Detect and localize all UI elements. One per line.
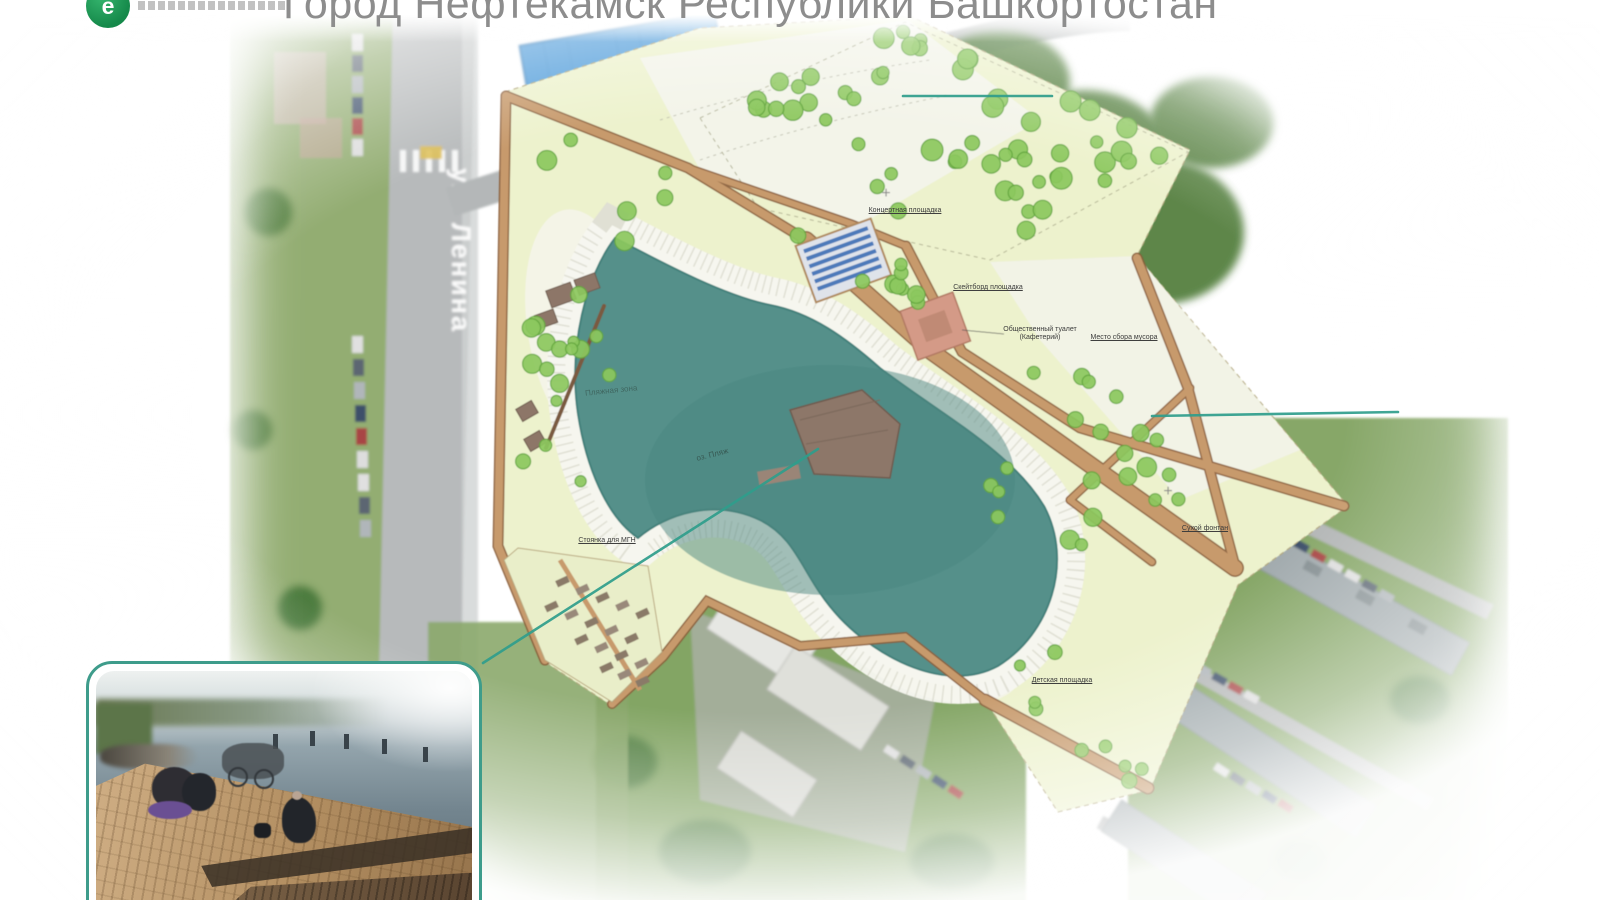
plan-label-disabled-parking: Стоянка для МГН	[578, 537, 635, 545]
purple-blanket	[148, 801, 192, 819]
piling	[310, 731, 315, 746]
plan-label-toilet-cafe: Общественный туалет (Кафетерий)	[997, 326, 1083, 342]
plan-label-concert-ground: Концертная площадка	[869, 207, 942, 215]
inset-photo-frame	[86, 661, 482, 900]
piling	[382, 739, 387, 754]
piling	[423, 747, 428, 762]
logo-caption	[138, 1, 286, 10]
inset-photo-pier	[96, 671, 472, 900]
page-title: Город Нефтекамск Республики Башкортостан	[283, 0, 1218, 26]
plan-label-skate-ground: Скейтборд площадка	[953, 284, 1023, 292]
logo-letter: е	[102, 0, 115, 20]
person-head	[292, 791, 302, 800]
bag	[254, 823, 271, 838]
survey-cross-2: +	[1163, 483, 1172, 500]
slide: ул. Ленина	[0, 0, 1600, 900]
sun-glare	[292, 671, 472, 784]
plan-label-dry-fountain: Сухой фонтан	[1182, 525, 1228, 533]
survey-cross: +	[881, 185, 890, 202]
bike-wheel	[228, 767, 248, 787]
piling	[344, 734, 349, 749]
plan-label-playground: Детская площадка	[1032, 677, 1093, 685]
plan-label-waste-point: Место сбора мусора	[1091, 334, 1158, 342]
bike-wheel	[254, 769, 274, 789]
